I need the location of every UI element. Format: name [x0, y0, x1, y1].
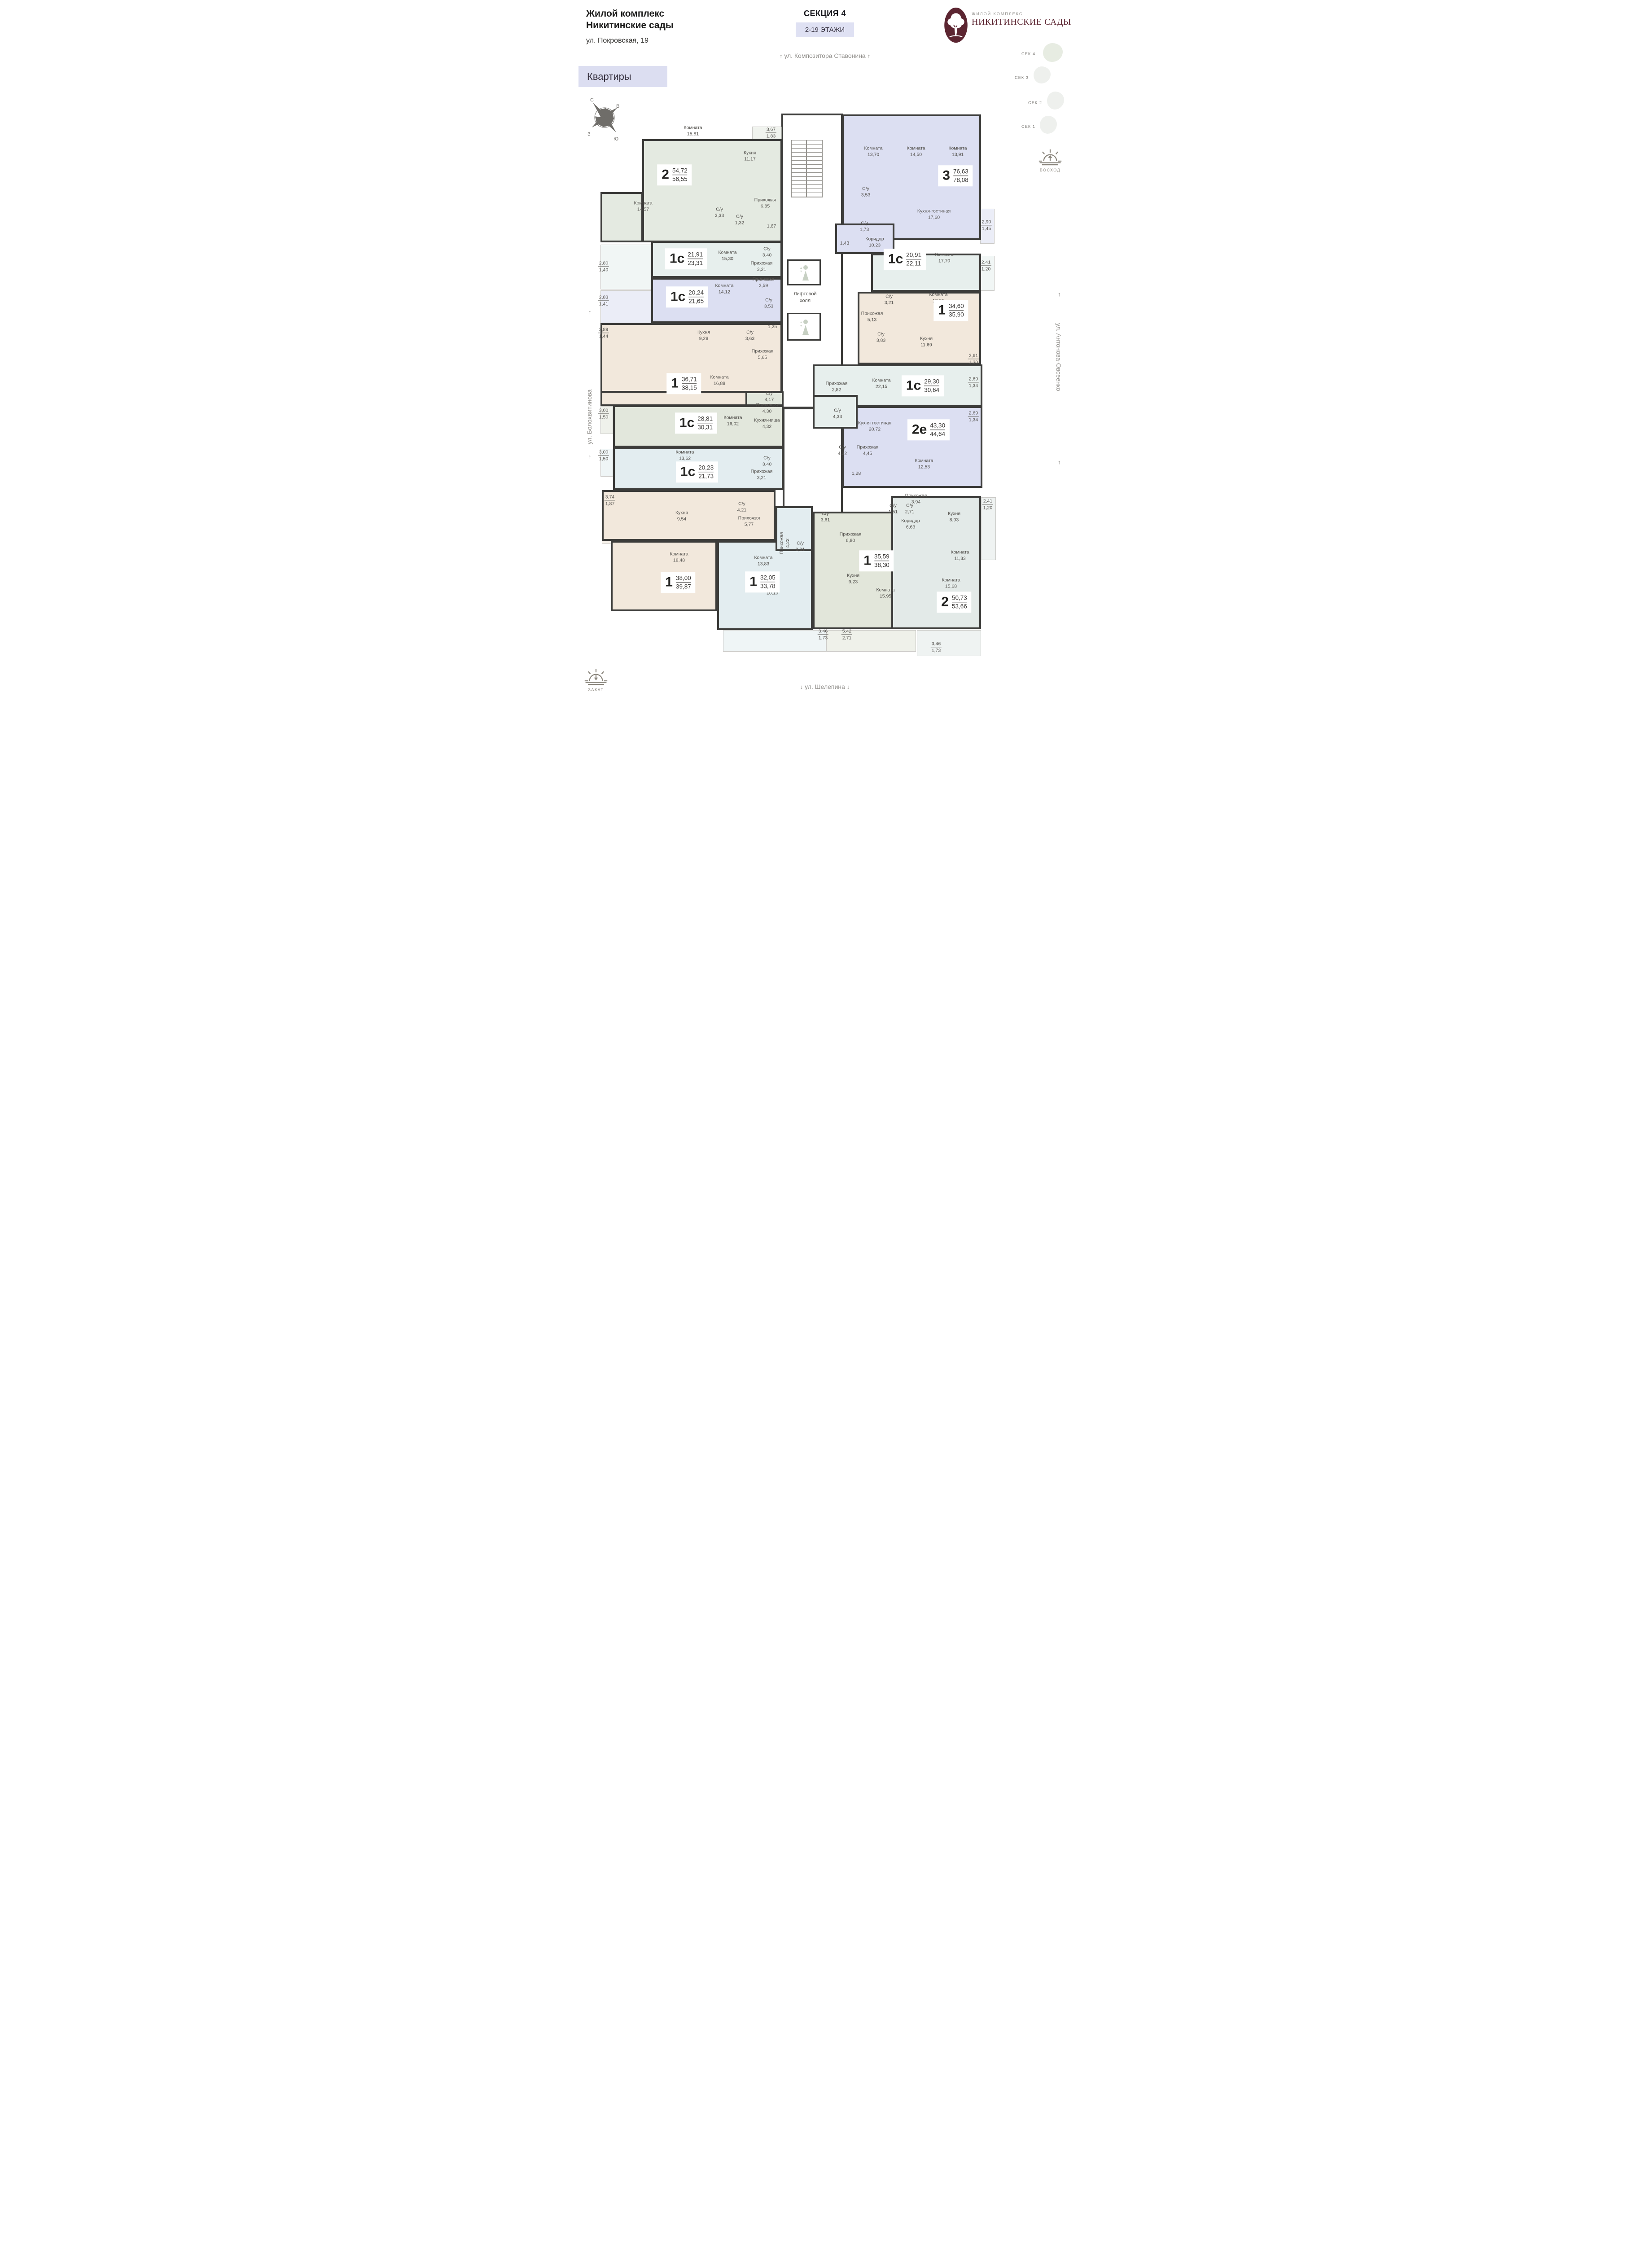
room-label: 1,67	[767, 224, 776, 230]
room-label: Прихожая3,21	[751, 469, 773, 481]
apartment-region[interactable]	[600, 192, 643, 242]
area-living: 28,81	[697, 415, 713, 423]
area-total: 44,64	[930, 430, 945, 438]
area-total: 22,11	[906, 260, 921, 268]
room-label: Комната15,68	[942, 577, 960, 589]
area-living: 38,00	[676, 574, 691, 583]
area-living: 43,30	[930, 421, 945, 430]
room-label: Кухня9,23	[847, 573, 859, 585]
room-label: Комната14,57	[634, 200, 652, 212]
area-total: 35,90	[949, 311, 964, 319]
apartment-badge[interactable]: 135,5938,30	[859, 550, 894, 571]
room-label: Комната13,62	[675, 449, 694, 461]
apartment-type: 2	[662, 169, 669, 182]
room-label: С/у3,53	[861, 186, 870, 198]
room-label: Прихожая6,85	[754, 197, 776, 209]
room-label: С/у3,81	[796, 540, 805, 552]
area-total: 38,15	[682, 384, 697, 392]
apartment-badge[interactable]: 1с20,2421,65	[666, 286, 708, 307]
area-total: 78,08	[953, 176, 968, 184]
balcony-label: 2,831,41	[598, 294, 609, 307]
area-living: 32,05	[760, 574, 776, 582]
room-label: Прихожая5,13	[861, 311, 883, 323]
area-total: 38,30	[874, 561, 890, 570]
room-label: С/у4,17	[765, 390, 774, 403]
room-label: Прихожая2,59	[753, 276, 775, 289]
area-total: 21,65	[688, 298, 704, 306]
balcony-label: 2,411,20	[982, 498, 993, 511]
apartment-type: 1с	[670, 253, 684, 266]
room-label: Кухня-гостиная17,60	[917, 208, 951, 220]
area-total: 23,31	[688, 259, 703, 267]
room-label: Комната13,83	[754, 555, 772, 567]
apartment-badge[interactable]: 134,6035,90	[933, 300, 968, 321]
area-living: 20,91	[906, 251, 921, 259]
room-label: Кухня9,54	[675, 510, 688, 522]
balcony-label: 3,461,73	[818, 628, 828, 641]
balcony-label: 2,691,34	[968, 410, 979, 423]
apartment-type: 1	[671, 377, 679, 390]
room-label: 1,28	[852, 471, 861, 477]
room-label: Прихожая2,82	[826, 381, 848, 393]
balcony-label: 2,801,40	[598, 260, 609, 273]
apartment-badge[interactable]: 2е43,3044,64	[907, 419, 950, 440]
room-label: Комната18,48	[670, 551, 688, 563]
apartment-type: 1с	[670, 291, 685, 304]
stairwell	[791, 140, 823, 197]
room-label: Кухня11,17	[744, 150, 756, 162]
room-label: Прихожая4,45	[857, 444, 879, 456]
balcony-label: 3,001,50	[598, 407, 609, 420]
room-label: 1,43	[840, 241, 849, 247]
apartment-badge[interactable]: 136,7138,15	[666, 373, 701, 394]
room-label: Комната16,02	[723, 415, 742, 427]
balcony-label: 3,001,50	[598, 449, 609, 462]
area-total: 30,64	[924, 386, 939, 394]
apartment-badge[interactable]: 138,0039,87	[661, 572, 695, 593]
apartment-type: 1с	[888, 253, 903, 266]
apartment-badge[interactable]: 1с21,9123,31	[665, 248, 707, 269]
area-living: 35,59	[874, 552, 890, 561]
room-label: Прихожая5,77	[738, 515, 760, 527]
room-label: С/у3,33	[715, 206, 724, 219]
room-label: С/у4,32	[838, 444, 847, 456]
floorplan-page: Жилой комплекс Никитинские сады ул. Покр…	[575, 0, 1077, 710]
area-living: 29,30	[924, 377, 939, 386]
room-label: Прихожая6,80	[840, 531, 862, 543]
area-total: 56,55	[672, 175, 688, 184]
balcony-label: 5,422,71	[841, 628, 852, 641]
room-label: С/у2,71	[905, 503, 914, 515]
apartment-type: 1с	[680, 466, 695, 479]
apartment-badge[interactable]: 132,0533,78	[745, 571, 780, 592]
room-label: Прихожая4,22	[779, 532, 791, 554]
room-label: Комната13,91	[948, 145, 967, 158]
room-label: С/у1,51	[889, 503, 898, 515]
room-label: Комната15,81	[684, 125, 702, 137]
balcony-region	[917, 630, 981, 656]
room-label: С/у3,61	[821, 511, 830, 523]
room-label: Коридор6,63	[901, 518, 920, 530]
apartment-type: 3	[942, 170, 950, 183]
room-label: Комната15,30	[718, 250, 736, 262]
balcony-region	[826, 630, 916, 652]
room-label: Комната15,95	[876, 587, 894, 599]
apartment-region[interactable]	[642, 139, 782, 242]
apartment-badge[interactable]: 1с20,2321,73	[676, 461, 718, 482]
area-living: 54,72	[672, 167, 688, 175]
apartment-badge[interactable]: 376,6378,08	[938, 165, 973, 186]
area-living: 36,71	[682, 375, 697, 384]
elevator-icon	[787, 313, 821, 341]
apartment-type: 2	[941, 596, 949, 609]
room-label: Кухня-гостиная20,72	[858, 420, 891, 432]
room-label: С/у3,63	[745, 329, 754, 342]
balcony-label: 3,461,73	[931, 640, 942, 653]
balcony-label: 2,891,44	[598, 326, 609, 339]
room-label: С/у3,40	[762, 246, 771, 258]
apartment-badge[interactable]: 250,7353,66	[937, 592, 971, 613]
balcony-label: 2,691,34	[968, 376, 979, 389]
area-total: 30,31	[697, 424, 713, 432]
apartment-badge[interactable]: 1с29,3030,64	[902, 375, 944, 396]
room-label: Комната14,50	[907, 145, 925, 158]
room-label: Кухня9,28	[697, 329, 710, 342]
room-label: С/у1,32	[735, 214, 744, 226]
room-label: Комната12,53	[915, 458, 933, 470]
area-living: 21,91	[688, 250, 703, 259]
area-living: 20,24	[688, 289, 704, 297]
elevator-icon	[787, 259, 821, 285]
room-label: Прихожая4,30	[756, 402, 778, 414]
balcony-label: 3,671,83	[766, 126, 776, 139]
room-label: Кухня8,93	[948, 511, 960, 523]
balcony-label: 2,411,20	[981, 259, 991, 272]
room-label: Комната14,12	[715, 283, 733, 295]
room-label: 1,25	[768, 324, 777, 330]
room-label: Прихожая5,65	[752, 348, 774, 360]
balcony-region	[723, 630, 826, 652]
room-label: Коридор10,23	[865, 236, 884, 248]
apartment-badge[interactable]: 254,7256,55	[657, 164, 692, 185]
area-total: 39,87	[676, 583, 691, 591]
room-label: Комната11,33	[951, 549, 969, 561]
apartment-type: 1с	[679, 417, 694, 430]
apartment-type: 2е	[912, 424, 927, 437]
room-label: Комната22,15	[872, 377, 890, 390]
apartment-type: 1с	[906, 380, 921, 393]
room-label: С/у3,83	[876, 331, 885, 343]
area-living: 34,60	[949, 302, 964, 311]
apartment-type: 1	[665, 576, 673, 589]
room-label: Кухня11,69	[920, 336, 933, 348]
room-label: С/у4,33	[833, 408, 842, 420]
room-label: С/у3,40	[762, 455, 771, 467]
area-total: 21,73	[698, 473, 714, 481]
room-label: Комната17,70	[935, 252, 953, 264]
apartment-type: 1	[863, 555, 871, 568]
balcony-label: 2,611,30	[968, 352, 979, 365]
area-total: 33,78	[760, 583, 776, 591]
area-living: 50,73	[952, 594, 967, 602]
area-living: 76,63	[953, 167, 968, 176]
room-label: Кухня-ниша4,32	[754, 417, 780, 430]
elevator-hall-label: Лифтовой холл	[785, 291, 825, 305]
room-label: Прихожая3,21	[751, 260, 773, 272]
apartment-type: 1	[938, 304, 946, 317]
area-total: 53,66	[952, 603, 967, 611]
apartment-badge[interactable]: 1с20,9122,11	[884, 249, 926, 270]
stairwell-divider	[806, 140, 807, 197]
room-label: С/у4,21	[737, 501, 746, 513]
room-label: С/у3,21	[885, 294, 894, 306]
apartment-badge[interactable]: 1с28,8130,31	[675, 412, 717, 434]
room-label: С/у3,53	[764, 297, 773, 309]
room-label: Комната16,88	[710, 374, 728, 386]
room-label: Комната13,70	[864, 145, 882, 158]
area-living: 20,23	[698, 464, 714, 472]
balcony-label: 2,901,45	[981, 219, 992, 232]
apartment-type: 1	[749, 576, 757, 589]
balcony-label: 3,741,87	[605, 494, 615, 507]
floor-plan: Лифтовой холл Комната15,81Кухня11,17Комн…	[575, 0, 1077, 710]
room-label: С/у1,73	[860, 220, 869, 232]
